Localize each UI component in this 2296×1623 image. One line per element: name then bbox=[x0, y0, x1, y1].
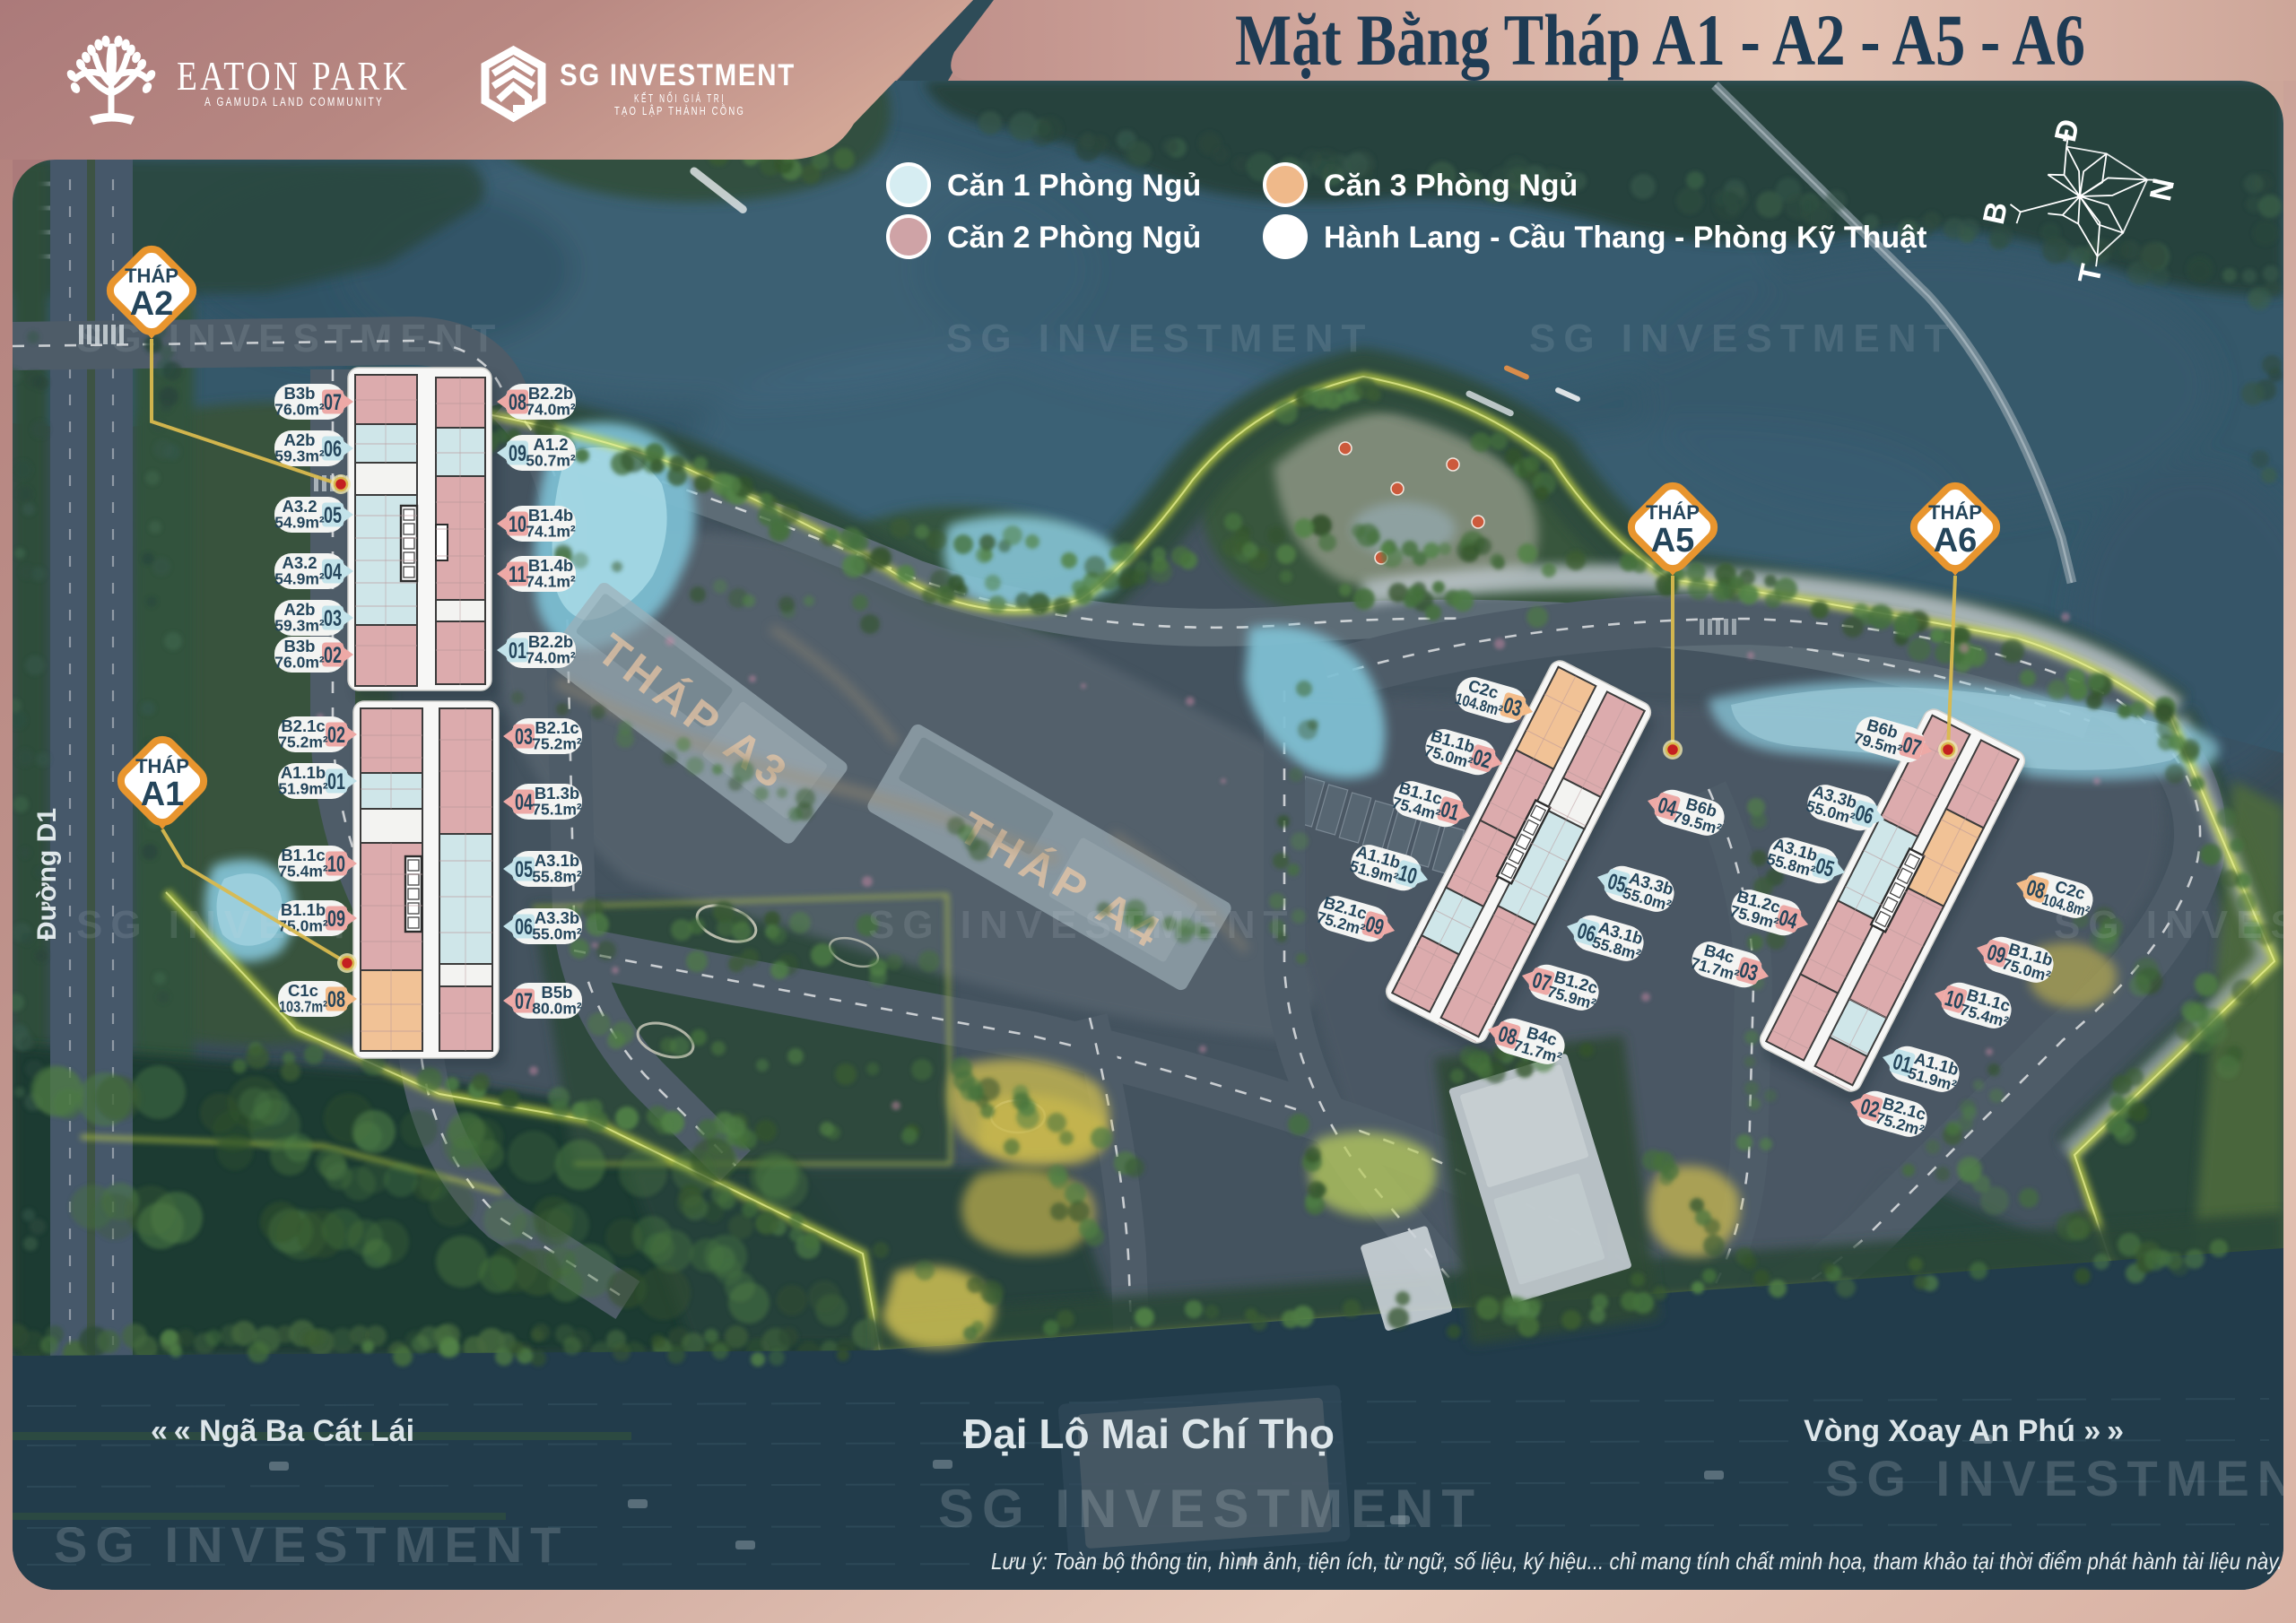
svg-text:Căn 1 Phòng Ngủ: Căn 1 Phòng Ngủ bbox=[947, 169, 1201, 203]
svg-text:SG INVESTMENT: SG INVESTMENT bbox=[560, 58, 796, 92]
svg-text:THÁP: THÁP bbox=[1646, 501, 1700, 524]
svg-text:SG INVESTMENT: SG INVESTMENT bbox=[946, 317, 1373, 360]
svg-text:74.1m²: 74.1m² bbox=[526, 573, 576, 591]
svg-text:01: 01 bbox=[327, 769, 345, 794]
svg-text:75.1m²: 75.1m² bbox=[532, 801, 582, 819]
svg-text:02: 02 bbox=[324, 643, 342, 668]
svg-text:59.3m²: 59.3m² bbox=[274, 617, 325, 635]
svg-text:09: 09 bbox=[509, 441, 526, 466]
svg-text:08: 08 bbox=[509, 390, 526, 415]
svg-text:SG INVESTMENT: SG INVESTMENT bbox=[54, 1516, 569, 1573]
svg-text:A6: A6 bbox=[1934, 522, 1978, 560]
svg-text:07: 07 bbox=[515, 989, 533, 1014]
svg-text:74.0m²: 74.0m² bbox=[526, 649, 576, 667]
svg-text:04: 04 bbox=[324, 560, 342, 585]
svg-text:KẾT NỐI GIÁ TRỊ: KẾT NỐI GIÁ TRỊ bbox=[634, 91, 726, 105]
svg-text:Vòng Xoay An Phú » »: Vòng Xoay An Phú » » bbox=[1804, 1414, 2124, 1448]
svg-text:07: 07 bbox=[324, 390, 342, 415]
svg-text:06: 06 bbox=[324, 437, 342, 462]
svg-text:74.1m²: 74.1m² bbox=[526, 523, 576, 541]
svg-text:Đại Lộ Mai Chí Thọ: Đại Lộ Mai Chí Thọ bbox=[963, 1410, 1335, 1457]
svg-text:A5: A5 bbox=[1651, 522, 1695, 560]
svg-text:Mặt Bằng Tháp A1 - A2 - A5 - A: Mặt Bằng Tháp A1 - A2 - A5 - A6 bbox=[1235, 0, 2085, 81]
svg-text:A GAMUDA LAND COMMUNITY: A GAMUDA LAND COMMUNITY bbox=[204, 95, 384, 108]
svg-text:54.9m²: 54.9m² bbox=[274, 570, 325, 588]
svg-text:10: 10 bbox=[327, 852, 345, 877]
svg-text:75.2m²: 75.2m² bbox=[278, 733, 328, 751]
svg-text:59.3m²: 59.3m² bbox=[274, 447, 325, 465]
svg-text:A1: A1 bbox=[141, 776, 185, 813]
svg-text:THÁP: THÁP bbox=[135, 755, 189, 777]
svg-text:A2: A2 bbox=[130, 285, 174, 323]
svg-text:51.9m²: 51.9m² bbox=[278, 780, 328, 798]
svg-text:80.0m²: 80.0m² bbox=[532, 1000, 582, 1018]
svg-text:THÁP: THÁP bbox=[125, 265, 178, 287]
svg-text:Căn 3 Phòng Ngủ: Căn 3 Phòng Ngủ bbox=[1324, 169, 1578, 203]
svg-text:Căn 2 Phòng Ngủ: Căn 2 Phòng Ngủ bbox=[947, 221, 1201, 255]
svg-text:54.9m²: 54.9m² bbox=[274, 514, 325, 532]
svg-text:03: 03 bbox=[515, 725, 533, 750]
svg-text:75.4m²: 75.4m² bbox=[278, 863, 328, 881]
svg-text:76.0m²: 76.0m² bbox=[274, 654, 325, 672]
svg-text:05: 05 bbox=[515, 857, 533, 882]
svg-text:« « Ngã Ba Cát Lái: « « Ngã Ba Cát Lái bbox=[151, 1414, 414, 1448]
svg-text:103.7m²: 103.7m² bbox=[279, 998, 327, 1016]
svg-text:Đường D1: Đường D1 bbox=[32, 808, 62, 941]
svg-text:SG INVESTMENT: SG INVESTMENT bbox=[868, 903, 1295, 947]
svg-text:04: 04 bbox=[515, 790, 533, 815]
svg-text:05: 05 bbox=[324, 503, 342, 528]
svg-text:Lưu ý: Toàn bộ thông tin, hình: Lưu ý: Toàn bộ thông tin, hình ảnh, tiện… bbox=[991, 1548, 2283, 1575]
svg-text:EATON PARK: EATON PARK bbox=[177, 53, 410, 99]
svg-text:11: 11 bbox=[509, 562, 526, 587]
svg-text:THÁP: THÁP bbox=[1928, 501, 1982, 524]
svg-text:55.0m²: 55.0m² bbox=[532, 925, 582, 943]
svg-text:SG INVESTMENT: SG INVESTMENT bbox=[938, 1479, 1483, 1539]
svg-text:01: 01 bbox=[509, 638, 526, 664]
svg-text:SG INVESTMENT: SG INVESTMENT bbox=[1529, 317, 1956, 360]
svg-text:Hành Lang - Cầu Thang - Phòng: Hành Lang - Cầu Thang - Phòng Kỹ Thuật bbox=[1324, 221, 1926, 255]
svg-text:74.0m²: 74.0m² bbox=[526, 401, 576, 419]
svg-text:10: 10 bbox=[509, 512, 526, 537]
svg-text:08: 08 bbox=[327, 987, 345, 1012]
svg-text:55.8m²: 55.8m² bbox=[532, 868, 582, 886]
svg-text:03: 03 bbox=[324, 606, 342, 631]
svg-text:50.7m²: 50.7m² bbox=[526, 452, 576, 470]
svg-text:76.0m²: 76.0m² bbox=[274, 401, 325, 419]
svg-text:TẠO LẬP THÀNH CÔNG: TẠO LẬP THÀNH CÔNG bbox=[614, 104, 745, 117]
svg-text:02: 02 bbox=[327, 723, 345, 748]
svg-text:SG INVESTMENT: SG INVESTMENT bbox=[1825, 1450, 2296, 1506]
svg-text:75.2m²: 75.2m² bbox=[532, 735, 582, 753]
svg-text:09: 09 bbox=[327, 907, 345, 932]
svg-text:06: 06 bbox=[515, 915, 533, 940]
